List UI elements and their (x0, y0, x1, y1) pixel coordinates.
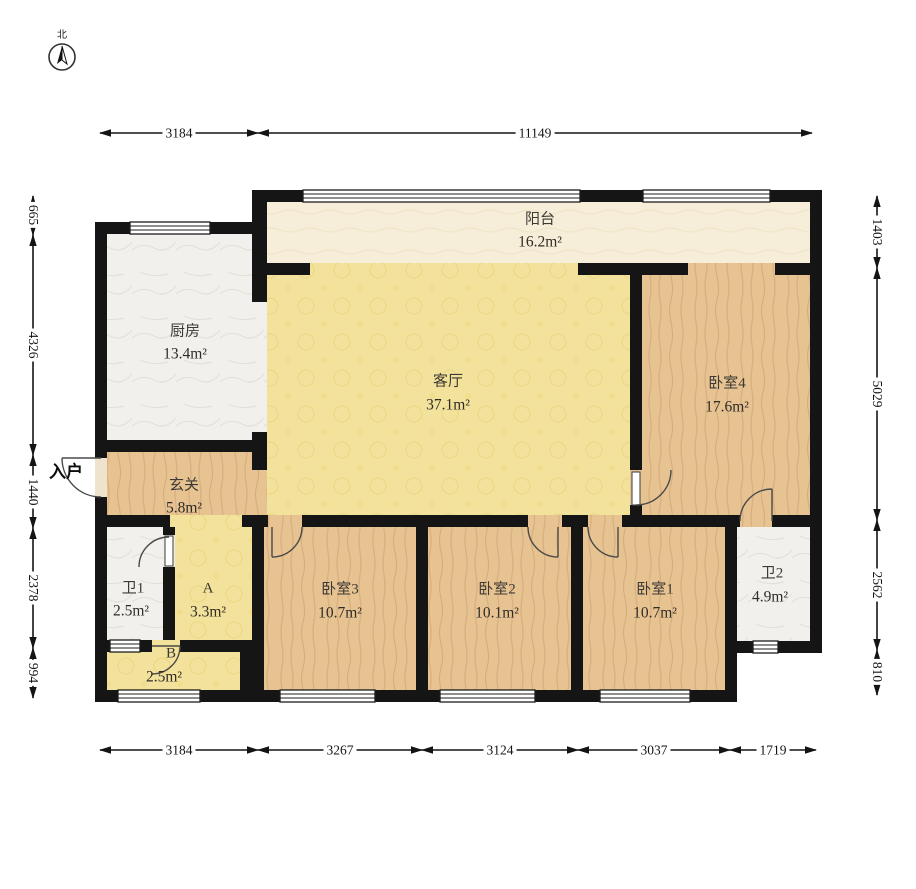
bath2-door-threshold (740, 515, 772, 527)
room-storage-a-area: 3.3m² (190, 604, 226, 620)
dim-right-3: 2562 (870, 569, 884, 602)
north-label: 北 (57, 31, 67, 41)
bedroom2-window (440, 690, 535, 702)
balcony-window-right (643, 190, 770, 202)
kitchen-opening-floor (252, 302, 267, 432)
room-hall-name: 玄关 (169, 479, 199, 494)
wall-bath1-a-lower (163, 567, 175, 640)
room-bath2-area: 4.9m² (752, 589, 788, 605)
dim-left-4: 2378 (26, 572, 40, 605)
dim-right-2: 5029 (870, 378, 884, 411)
storage-a-passage (170, 515, 242, 527)
bedroom3-window (280, 690, 375, 702)
wall-bedroomrow-seg3 (302, 515, 528, 527)
wall-bedroom1-bath2 (725, 527, 737, 641)
storage-b-window (118, 690, 200, 702)
room-bedroom3-name: 卧室3 (321, 583, 359, 598)
entrance-label: 入户 (49, 465, 83, 482)
wall-a-bedroom3 (252, 527, 264, 652)
bedroom2-door-threshold (528, 515, 562, 527)
room-storage-a-name: A (203, 582, 214, 597)
wall-right (810, 190, 822, 653)
hall-living-passage (252, 467, 267, 515)
room-bath1-name: 卫1 (122, 582, 145, 597)
dim-left-1: 665 (26, 202, 40, 228)
room-living-name: 客厅 (433, 375, 463, 390)
room-hall-area: 5.8m² (166, 500, 202, 516)
room-bath1-area: 2.5m² (113, 603, 149, 619)
dim-right-1: 1403 (870, 216, 884, 249)
room-bedroom3-area: 10.7m² (318, 605, 362, 621)
room-bath2-name: 卫2 (761, 567, 784, 582)
wall-bedroomrow-seg4 (562, 515, 588, 527)
room-bedroom1-name: 卧室1 (636, 583, 674, 598)
room-kitchen-area: 13.4m² (163, 346, 207, 362)
wall-bath1-a-upper (163, 527, 175, 535)
wall-left-upper (95, 222, 107, 458)
dim-left-5: 994 (26, 660, 40, 686)
dim-bottom-4: 3037 (638, 743, 671, 757)
dim-top-2: 11149 (516, 126, 555, 140)
compass-icon (49, 44, 75, 70)
bath2-floor (737, 527, 810, 641)
room-bedroom2-area: 10.1m² (475, 605, 519, 621)
bath2-window (753, 641, 778, 653)
wall-kitchen-bottom (95, 440, 267, 452)
dim-right-4: 810 (870, 659, 884, 685)
wall-balcony-bedroom4-stub (775, 263, 810, 275)
balcony-window-left (303, 190, 580, 202)
bedroom4-balcony-passage (688, 263, 775, 275)
dim-bottom-3: 3124 (484, 743, 517, 757)
wall-balcony-living-right (578, 263, 688, 275)
wall-bedroomrow-seg1 (95, 515, 170, 527)
wall-bedroom2-bedroom1 (571, 527, 583, 690)
living-room-floor (267, 275, 630, 515)
bedroom3-door-threshold (268, 515, 302, 527)
room-storage-b-area: 2.5m² (146, 669, 182, 685)
dim-bottom-1: 3184 (163, 743, 196, 757)
entrance-threshold (95, 458, 107, 497)
wall-bedroom3-bedroom2 (416, 527, 428, 690)
bedroom1-window (600, 690, 690, 702)
room-bedroom4-area: 17.6m² (705, 399, 749, 415)
living-balcony-passage (310, 263, 578, 275)
wall-bedroomrow-seg5 (622, 515, 740, 527)
dim-top-1: 3184 (163, 126, 196, 140)
bedroom4-floor (642, 275, 810, 515)
wall-kitchen-right-upper (252, 193, 267, 302)
wall-balcony-living-left (252, 263, 310, 275)
room-bedroom2-name: 卧室2 (478, 583, 516, 598)
wall-b-right (240, 640, 264, 702)
bath1-b-window (110, 640, 140, 652)
kitchen-window (130, 222, 210, 234)
dim-left-2: 4326 (26, 329, 40, 362)
room-living-area: 37.1m² (426, 397, 470, 413)
room-bedroom1-area: 10.7m² (633, 605, 677, 621)
wall-bedroomrow-seg6 (772, 515, 822, 527)
dim-bottom-2: 3267 (324, 743, 357, 757)
room-balcony-name: 阳台 (525, 213, 555, 228)
room-balcony-area: 16.2m² (518, 234, 562, 250)
floorplan-page: 北 入户 阳台 16.2m² 厨房 13.4m² 客厅 37.1m² 卧室4 1… (0, 0, 916, 889)
wall-living-bedroom4-upper (630, 275, 642, 470)
wall-left-lower (95, 497, 107, 702)
room-storage-b-name: B (166, 647, 176, 662)
dim-bottom-5: 1719 (757, 743, 790, 757)
bedroom1-door-threshold (588, 515, 622, 527)
room-kitchen-name: 厨房 (170, 325, 200, 340)
dim-left-3: 1440 (26, 476, 40, 509)
room-bedroom4-name: 卧室4 (708, 377, 746, 392)
wall-bedroomrow-seg2 (242, 515, 268, 527)
